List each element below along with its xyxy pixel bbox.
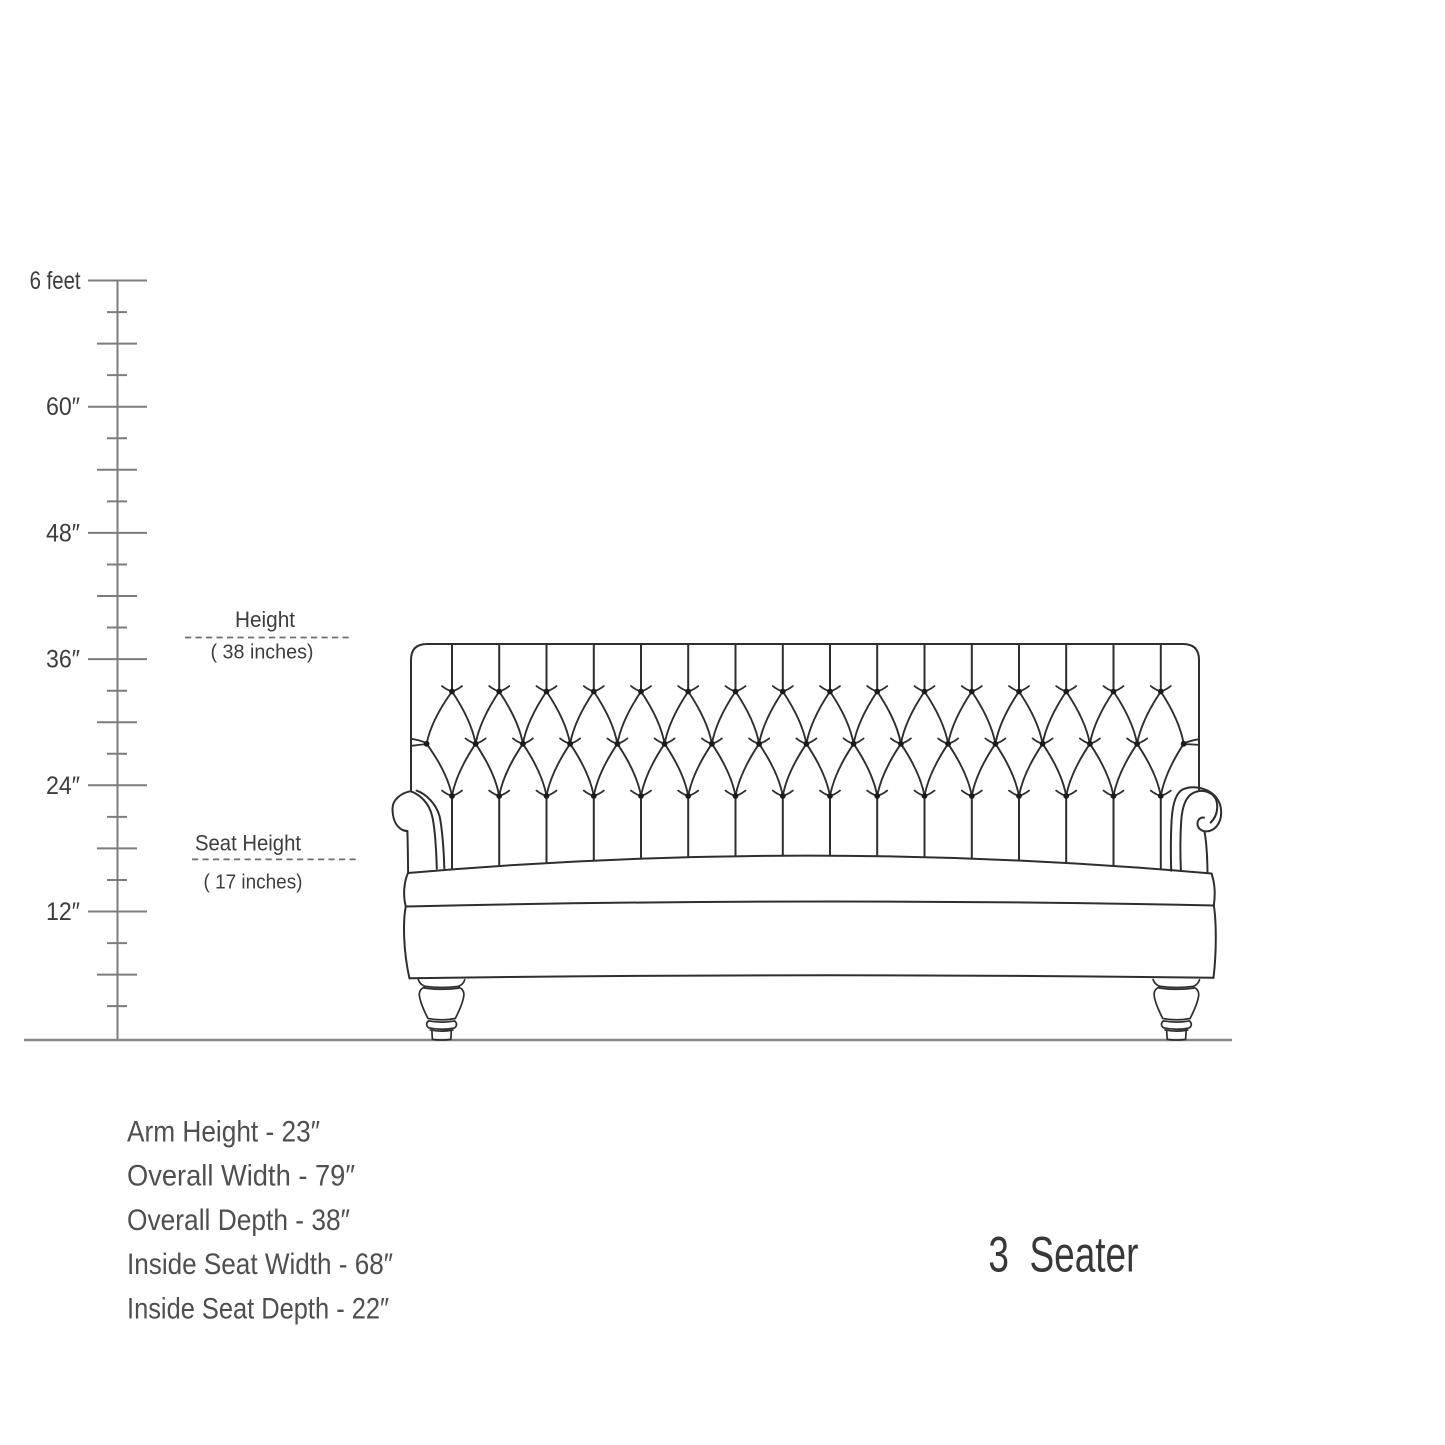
- svg-text:48″: 48″: [46, 519, 80, 547]
- svg-text:6 feet: 6 feet: [30, 267, 81, 295]
- svg-text:36″: 36″: [46, 646, 80, 674]
- svg-text:Inside Seat Depth - 22″: Inside Seat Depth - 22″: [127, 1292, 389, 1325]
- svg-text:Inside Seat Width - 68″: Inside Seat Width - 68″: [127, 1248, 393, 1281]
- svg-text:Overall Width - 79″: Overall Width - 79″: [127, 1160, 355, 1193]
- svg-text:12″: 12″: [46, 898, 80, 926]
- svg-text:24″: 24″: [46, 772, 80, 800]
- svg-text:3 Seater: 3 Seater: [988, 1227, 1138, 1283]
- svg-text:Seat Height: Seat Height: [195, 830, 301, 855]
- svg-text:Overall Depth - 38″: Overall Depth - 38″: [127, 1204, 350, 1237]
- svg-text:( 17 inches): ( 17 inches): [204, 872, 303, 894]
- svg-text:Height: Height: [235, 607, 295, 632]
- svg-text:60″: 60″: [46, 393, 80, 421]
- svg-text:( 38 inches): ( 38 inches): [211, 642, 314, 664]
- svg-text:Arm Height - 23″: Arm Height - 23″: [127, 1116, 320, 1149]
